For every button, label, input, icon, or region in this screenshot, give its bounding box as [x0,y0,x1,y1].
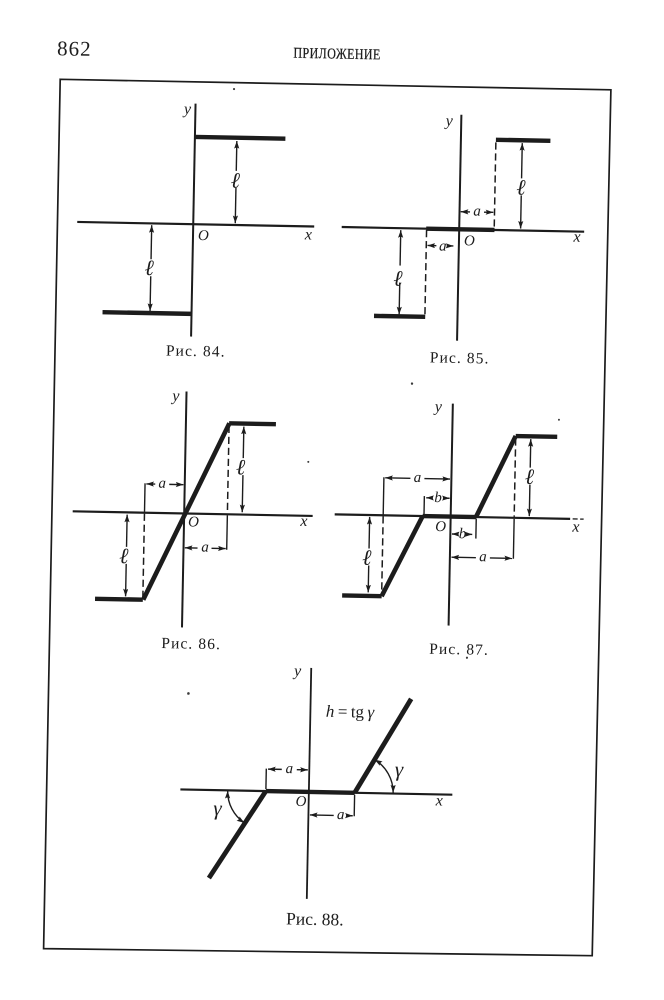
svg-text:ℓ: ℓ [119,543,129,568]
svg-text:y: y [433,398,443,415]
svg-text:ℓ: ℓ [393,266,403,291]
svg-text:x: x [571,519,579,536]
svg-text:y: y [170,388,180,405]
svg-text:a: a [201,540,209,556]
svg-text:ℓ: ℓ [236,454,246,479]
svg-text:ℓ: ℓ [362,545,372,570]
svg-text:x: x [299,513,307,530]
svg-text:a: a [479,549,487,565]
svg-text:862: 862 [57,36,92,61]
svg-text:O: O [464,233,475,249]
svg-text:a: a [473,203,481,219]
svg-text:b: b [434,490,442,506]
svg-text:ℓ: ℓ [231,168,241,193]
svg-text:x: x [304,226,312,243]
svg-text:Рис. 84.: Рис. 84. [166,342,226,360]
svg-text:ℓ: ℓ [144,255,154,280]
svg-text:γ: γ [395,757,404,781]
svg-text:y: y [182,101,192,118]
svg-text:x: x [434,792,442,809]
svg-text:y: y [444,113,454,130]
svg-text:Рис. 88.: Рис. 88. [286,908,344,929]
svg-text:Рис. 87.: Рис. 87. [429,641,489,659]
svg-text:b: b [459,526,467,542]
svg-text:a: a [158,476,166,492]
svg-text:ПРИЛОЖЕНИЕ: ПРИЛОЖЕНИЕ [293,44,381,62]
svg-text:γ: γ [213,796,222,820]
svg-text:a: a [285,761,293,777]
svg-text:a: a [439,239,447,255]
svg-text:y: y [292,663,302,680]
svg-text:O: O [188,514,199,530]
svg-text:ℓ: ℓ [516,175,526,200]
svg-text:O: O [435,519,446,535]
svg-text:O: O [198,228,209,244]
svg-text:Рис. 86.: Рис. 86. [161,635,221,653]
svg-text:a: a [337,807,345,823]
svg-text:ℓ: ℓ [525,464,535,489]
svg-text:h = tg γ: h = tg γ [326,702,376,722]
svg-text:a: a [414,470,422,486]
svg-text:O: O [295,794,306,810]
svg-text:x: x [572,229,580,246]
svg-text:Рис. 85.: Рис. 85. [430,349,490,367]
